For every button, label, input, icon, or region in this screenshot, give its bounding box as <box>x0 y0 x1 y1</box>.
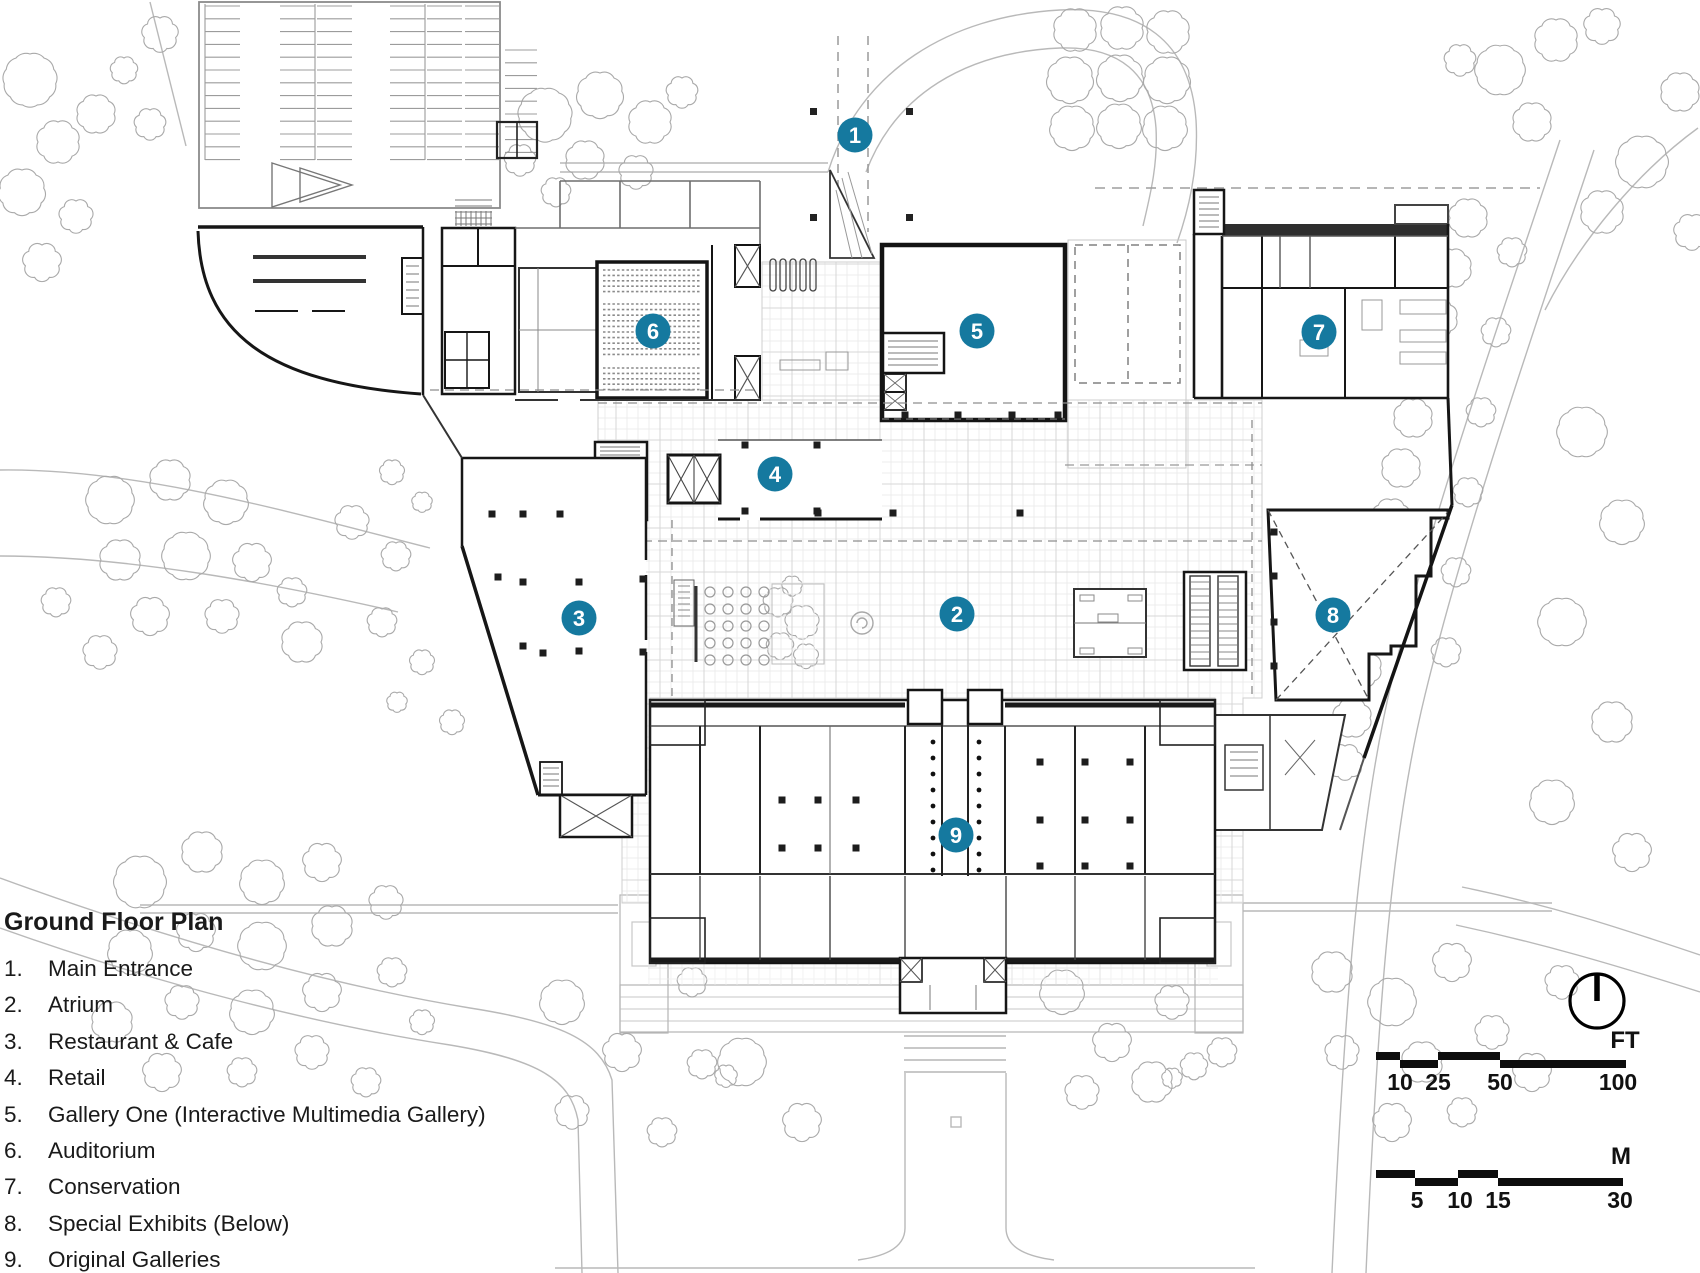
room-marker: 5 <box>960 314 995 349</box>
svg-text:5: 5 <box>1411 1187 1424 1213</box>
legend: Ground Floor Plan 1.Main Entrance2.Atriu… <box>4 908 544 1273</box>
svg-text:10: 10 <box>1387 1069 1413 1095</box>
ft-scale-labels: 102550100 <box>1387 1069 1637 1095</box>
legend-item: 9.Original Galleries <box>4 1242 544 1273</box>
north-arrow-icon <box>1570 973 1624 1028</box>
ft-scale-bar <box>1376 1052 1626 1068</box>
svg-text:6: 6 <box>647 319 659 344</box>
room-marker: 4 <box>758 457 793 492</box>
room-marker: 1 <box>838 118 873 153</box>
svg-text:2: 2 <box>951 602 963 627</box>
m-scale-bar <box>1376 1170 1623 1186</box>
svg-text:100: 100 <box>1599 1069 1637 1095</box>
room-marker: 2 <box>940 597 975 632</box>
legend-item: 3.Restaurant & Cafe <box>4 1024 544 1060</box>
svg-text:9: 9 <box>950 823 962 848</box>
room-marker: 9 <box>939 818 974 853</box>
m-scale-unit: M <box>1611 1143 1631 1170</box>
svg-text:25: 25 <box>1425 1069 1451 1095</box>
legend-item: 2.Atrium <box>4 987 544 1023</box>
parking-garage <box>199 2 537 226</box>
svg-text:3: 3 <box>573 606 585 631</box>
svg-text:5: 5 <box>971 319 983 344</box>
svg-text:50: 50 <box>1487 1069 1513 1095</box>
page-title: Ground Floor Plan <box>4 908 544 937</box>
room-marker: 7 <box>1302 315 1337 350</box>
svg-text:1: 1 <box>849 123 861 148</box>
svg-text:15: 15 <box>1485 1187 1511 1213</box>
svg-text:4: 4 <box>769 462 782 487</box>
room-marker: 6 <box>636 314 671 349</box>
legend-item: 7.Conservation <box>4 1169 544 1205</box>
ft-scale-unit: FT <box>1610 1027 1640 1054</box>
legend-item: 5.Gallery One (Interactive Multimedia Ga… <box>4 1097 544 1133</box>
legend-item: 6.Auditorium <box>4 1133 544 1169</box>
room-marker: 8 <box>1316 598 1351 633</box>
svg-text:10: 10 <box>1447 1187 1473 1213</box>
west-wing <box>198 200 515 395</box>
legend-item: 4.Retail <box>4 1060 544 1096</box>
room-marker: 3 <box>562 601 597 636</box>
east-service-rooms <box>1215 715 1345 830</box>
svg-text:7: 7 <box>1313 320 1325 345</box>
m-scale-labels: 5101530 <box>1411 1187 1633 1213</box>
restaurant-wing <box>423 395 646 837</box>
legend-item: 8.Special Exhibits (Below) <box>4 1206 544 1242</box>
svg-text:30: 30 <box>1607 1187 1633 1213</box>
legend-item: 1.Main Entrance <box>4 951 544 987</box>
escalators <box>1184 572 1246 670</box>
ground-floor-plan-page: FT 102550100 M 5101530 123456789 Ground … <box>0 0 1700 1273</box>
svg-text:8: 8 <box>1327 603 1339 628</box>
legend-list: 1.Main Entrance2.Atrium3.Restaurant & Ca… <box>4 951 544 1273</box>
